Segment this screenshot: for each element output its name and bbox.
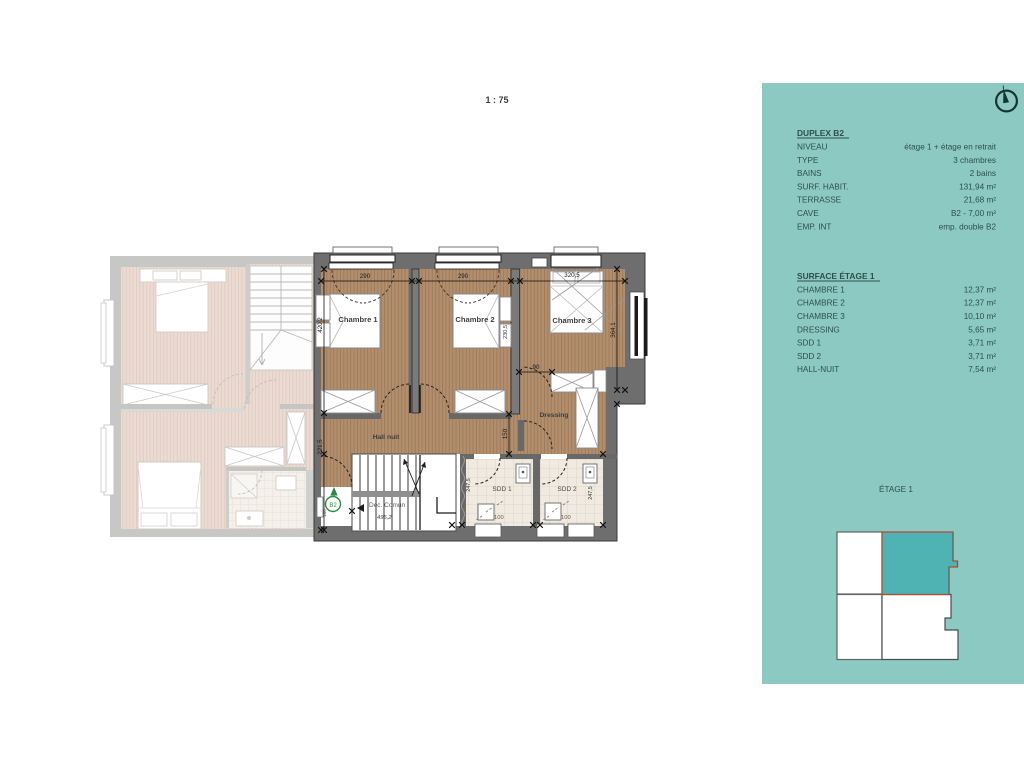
svg-text:Déc. Comun: Déc. Comun bbox=[369, 502, 406, 509]
svg-text:HALL-NUIT: HALL-NUIT bbox=[797, 365, 839, 374]
svg-text:150: 150 bbox=[502, 428, 509, 439]
svg-text:BAINS: BAINS bbox=[797, 169, 822, 178]
svg-text:CHAMBRE 3: CHAMBRE 3 bbox=[797, 312, 845, 321]
svg-text:12,37 m²: 12,37 m² bbox=[964, 299, 997, 308]
svg-text:5,65 m²: 5,65 m² bbox=[968, 325, 996, 334]
svg-text:DRESSING: DRESSING bbox=[797, 325, 840, 334]
svg-text:3,71 m²: 3,71 m² bbox=[968, 339, 996, 348]
svg-text:364,1: 364,1 bbox=[610, 322, 617, 338]
svg-text:7,54 m²: 7,54 m² bbox=[968, 365, 996, 374]
svg-text:131,94 m²: 131,94 m² bbox=[959, 182, 996, 191]
svg-text:12,37 m²: 12,37 m² bbox=[964, 285, 997, 294]
svg-text:247,5: 247,5 bbox=[466, 478, 472, 492]
svg-text:290: 290 bbox=[458, 273, 469, 280]
svg-text:230,5: 230,5 bbox=[503, 325, 509, 339]
svg-text:10,10 m²: 10,10 m² bbox=[964, 312, 997, 321]
svg-text:SURFACE ÉTAGE 1: SURFACE ÉTAGE 1 bbox=[797, 270, 875, 281]
svg-text:B2 - 7,00 m²: B2 - 7,00 m² bbox=[951, 209, 996, 218]
svg-text:SDD 1: SDD 1 bbox=[797, 339, 822, 348]
svg-text:SDD 2: SDD 2 bbox=[557, 486, 577, 493]
svg-text:CHAMBRE 2: CHAMBRE 2 bbox=[797, 299, 845, 308]
svg-text:emp. double B2: emp. double B2 bbox=[939, 222, 997, 231]
svg-text:SDD 2: SDD 2 bbox=[797, 352, 822, 361]
svg-text:Chambre 2: Chambre 2 bbox=[455, 315, 494, 324]
svg-text:3 chambres: 3 chambres bbox=[953, 156, 996, 165]
svg-text:495,2: 495,2 bbox=[377, 515, 392, 521]
svg-text:CHAMBRE 1: CHAMBRE 1 bbox=[797, 285, 845, 294]
svg-text:TYPE: TYPE bbox=[797, 156, 819, 165]
svg-text:étage 1 + étage en retrait: étage 1 + étage en retrait bbox=[904, 143, 996, 152]
svg-text:ÉTAGE 1: ÉTAGE 1 bbox=[879, 484, 913, 494]
svg-text:Hall nuit: Hall nuit bbox=[373, 434, 401, 441]
svg-text:290: 290 bbox=[360, 273, 371, 280]
svg-text:DUPLEX B2: DUPLEX B2 bbox=[797, 128, 844, 138]
svg-text:SDD 1: SDD 1 bbox=[492, 486, 512, 493]
svg-text:247,5: 247,5 bbox=[588, 486, 594, 500]
svg-text:B2: B2 bbox=[329, 503, 337, 509]
svg-text:SURF. HABIT.: SURF. HABIT. bbox=[797, 182, 848, 191]
svg-text:Chambre 1: Chambre 1 bbox=[338, 315, 378, 324]
svg-text:NIVEAU: NIVEAU bbox=[797, 143, 828, 152]
svg-text:221,5: 221,5 bbox=[317, 439, 324, 455]
svg-text:1 : 75: 1 : 75 bbox=[485, 95, 508, 105]
svg-text:Dressing: Dressing bbox=[539, 412, 568, 419]
svg-text:100: 100 bbox=[561, 515, 571, 521]
svg-text:EMP. INT: EMP. INT bbox=[797, 222, 831, 231]
svg-text:Chambre 3: Chambre 3 bbox=[552, 316, 591, 325]
svg-text:CAVE: CAVE bbox=[797, 209, 819, 218]
svg-text:100: 100 bbox=[494, 515, 504, 521]
svg-text:100: 100 bbox=[322, 509, 327, 517]
svg-text:2 bains: 2 bains bbox=[970, 169, 996, 178]
svg-text:21,68 m²: 21,68 m² bbox=[964, 196, 997, 205]
svg-text:320,5: 320,5 bbox=[564, 272, 580, 279]
svg-text:3,71 m²: 3,71 m² bbox=[968, 352, 996, 361]
svg-text:90: 90 bbox=[533, 364, 540, 371]
svg-text:420,2: 420,2 bbox=[317, 317, 324, 333]
svg-text:TERRASSE: TERRASSE bbox=[797, 196, 842, 205]
